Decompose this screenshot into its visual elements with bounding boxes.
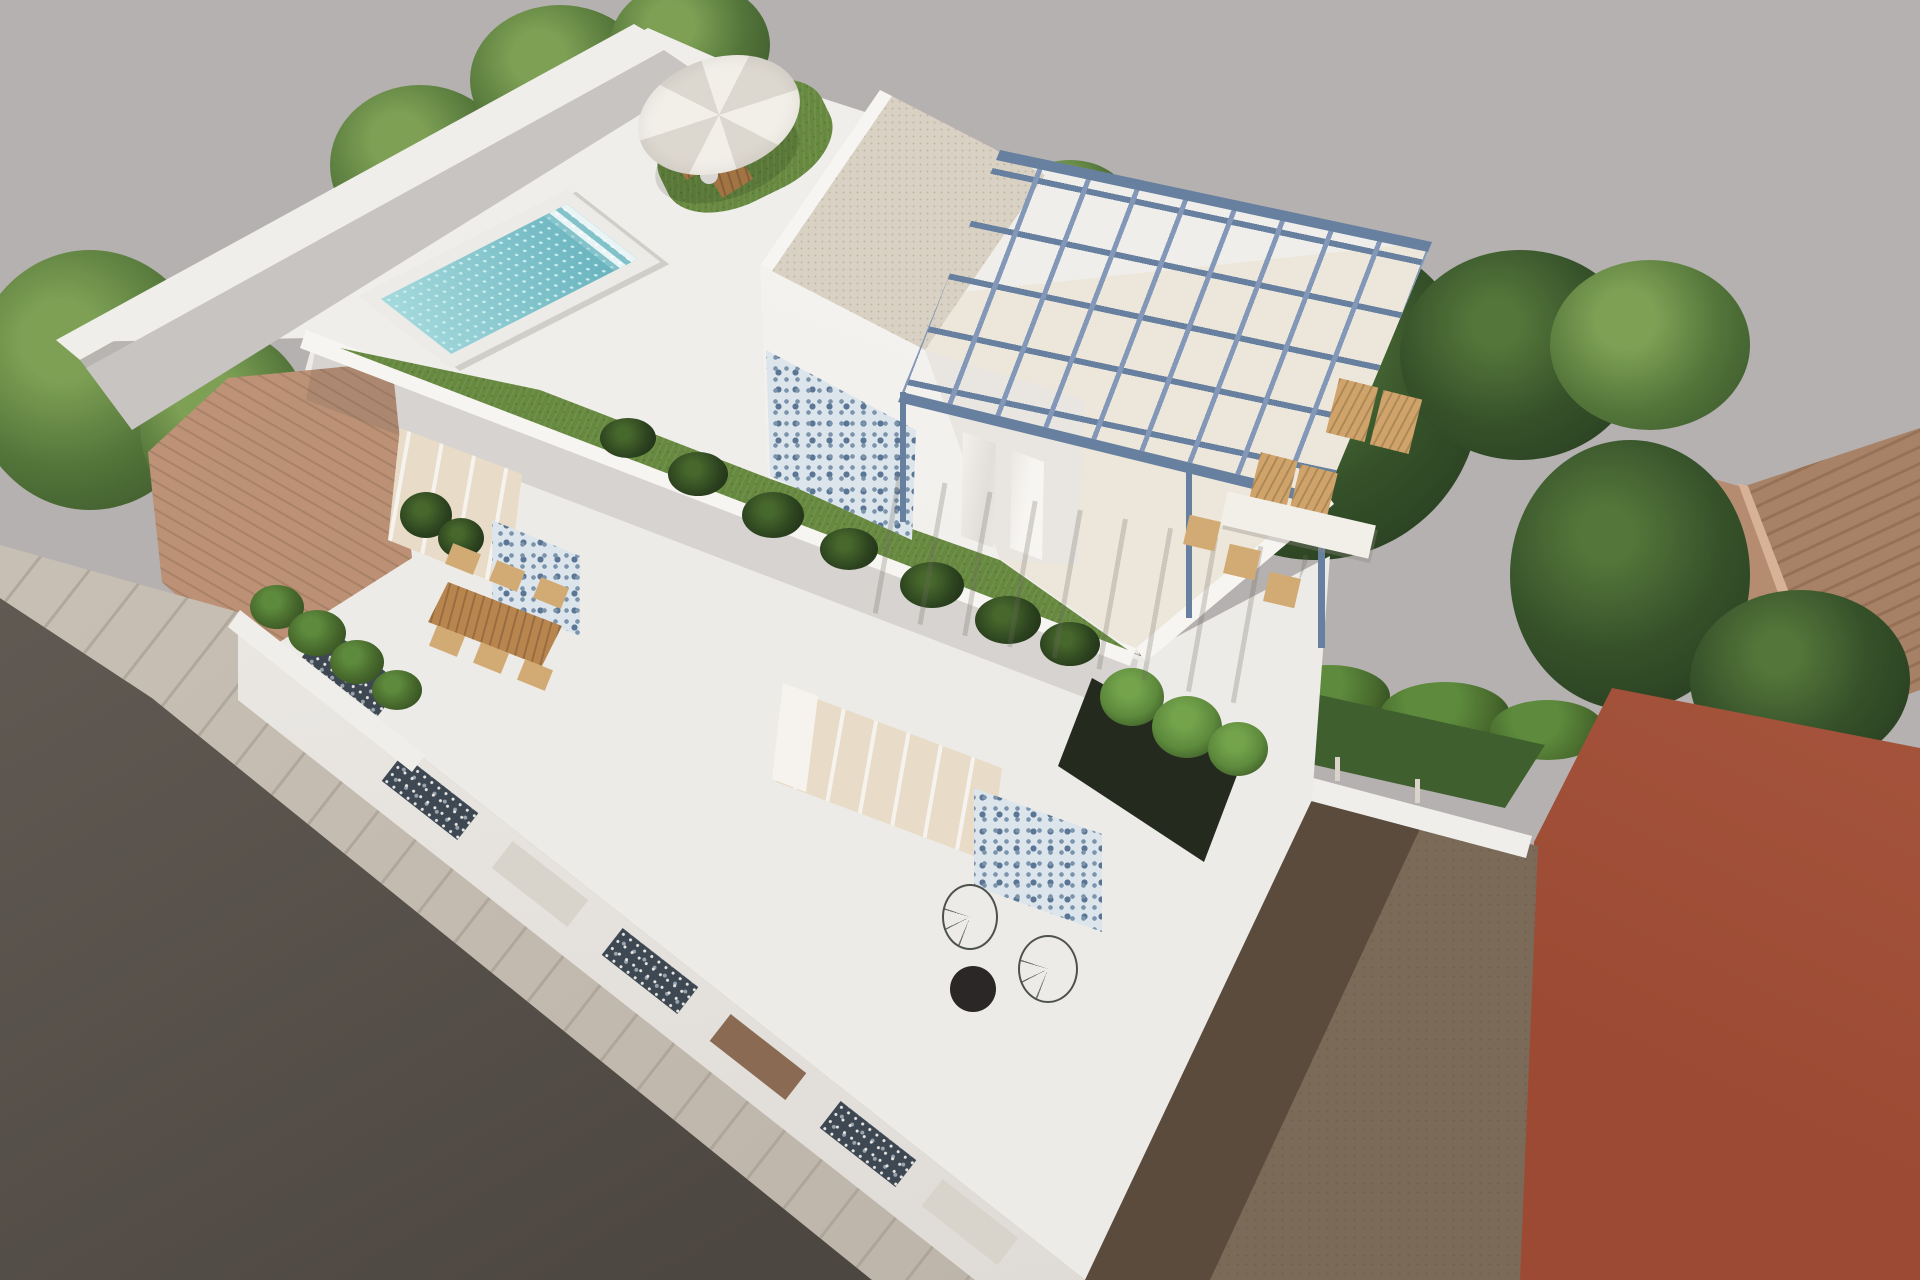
villa-render-image xyxy=(0,0,1920,1280)
pergola-post xyxy=(900,392,906,522)
acapulco-chair xyxy=(1018,935,1078,1003)
shrub-icon xyxy=(372,670,422,710)
tree-icon xyxy=(1550,260,1750,430)
round-black-table xyxy=(950,966,996,1012)
fence-post xyxy=(1335,757,1340,781)
fence-post xyxy=(1415,779,1420,803)
rooftop-plant-icon xyxy=(742,492,804,538)
rooftop-plant-icon xyxy=(600,418,656,458)
banana-plant-icon xyxy=(1208,722,1268,776)
rooftop-plant-icon xyxy=(668,452,728,496)
acapulco-chair xyxy=(942,884,998,950)
